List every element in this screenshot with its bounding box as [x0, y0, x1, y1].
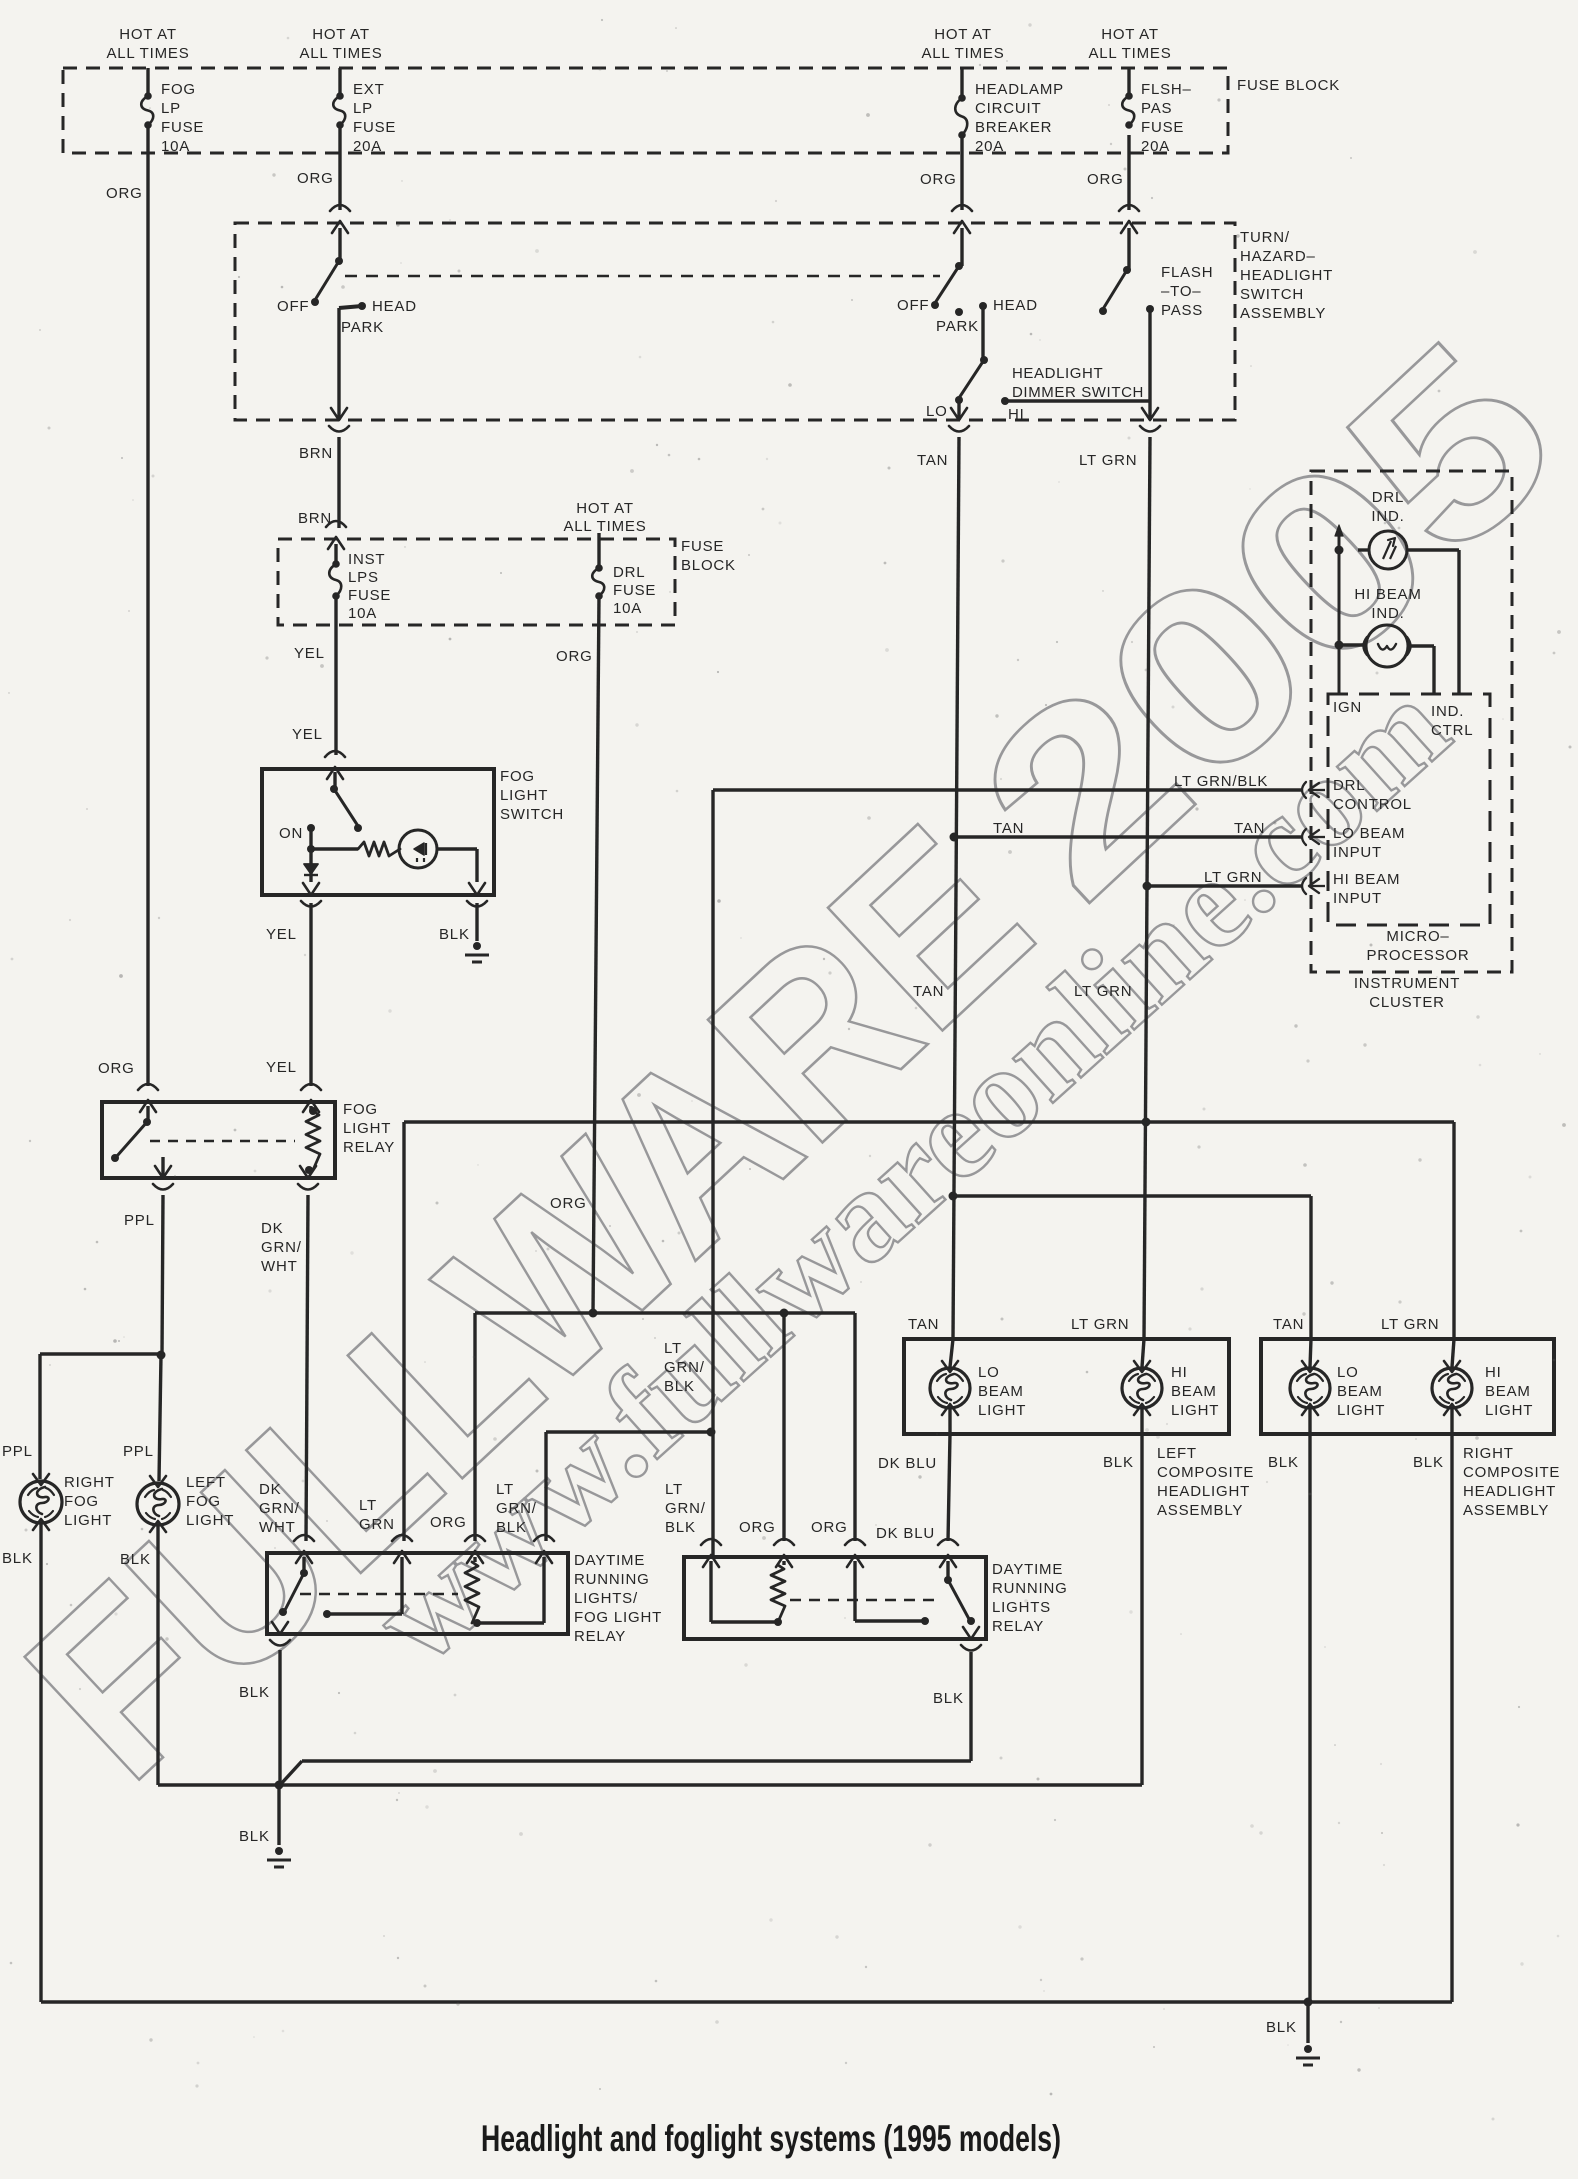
svg-text:LIGHT: LIGHT: [64, 1512, 112, 1529]
svg-text:INSTRUMENT: INSTRUMENT: [1354, 975, 1460, 992]
svg-text:RUNNING: RUNNING: [992, 1580, 1068, 1597]
svg-text:BLK: BLK: [1103, 1454, 1134, 1471]
svg-text:BLK: BLK: [1268, 1454, 1299, 1471]
svg-text:WHT: WHT: [261, 1258, 298, 1275]
svg-text:DK: DK: [261, 1220, 283, 1237]
svg-text:BEAM: BEAM: [1485, 1383, 1531, 1400]
svg-text:LT GRN: LT GRN: [1381, 1316, 1439, 1333]
svg-text:DRL: DRL: [1372, 489, 1404, 506]
svg-text:ORG: ORG: [430, 1514, 467, 1531]
svg-text:GRN/: GRN/: [259, 1500, 300, 1517]
svg-text:CONTROL: CONTROL: [1333, 796, 1412, 813]
svg-text:ORG: ORG: [920, 171, 957, 188]
svg-text:LEFT: LEFT: [186, 1474, 226, 1491]
svg-text:DK BLU: DK BLU: [876, 1525, 935, 1542]
svg-text:HI BEAM: HI BEAM: [1333, 871, 1400, 888]
svg-text:COMPOSITE: COMPOSITE: [1157, 1464, 1254, 1481]
svg-text:FUSE: FUSE: [613, 582, 656, 599]
svg-text:LT: LT: [496, 1481, 514, 1498]
svg-text:FUSE: FUSE: [353, 119, 396, 136]
svg-text:LT GRN/BLK: LT GRN/BLK: [1174, 773, 1268, 790]
svg-text:PPL: PPL: [124, 1212, 155, 1229]
svg-text:LIGHT: LIGHT: [186, 1512, 234, 1529]
svg-text:DRL: DRL: [1333, 777, 1365, 794]
svg-text:HI BEAM: HI BEAM: [1354, 586, 1421, 603]
svg-text:HOT AT: HOT AT: [119, 26, 177, 43]
svg-text:HEADLIGHT: HEADLIGHT: [1463, 1483, 1556, 1500]
svg-text:PPL: PPL: [2, 1443, 33, 1460]
svg-text:TAN: TAN: [917, 452, 948, 469]
svg-text:FLASH: FLASH: [1161, 264, 1213, 281]
svg-text:IND.: IND.: [1371, 508, 1404, 525]
svg-text:OFF: OFF: [277, 298, 309, 315]
svg-text:PARK: PARK: [936, 318, 979, 335]
svg-text:20A: 20A: [975, 138, 1004, 155]
svg-text:FUSE: FUSE: [161, 119, 204, 136]
svg-text:GRN/: GRN/: [261, 1239, 302, 1256]
svg-text:ALL TIMES: ALL TIMES: [299, 45, 382, 62]
svg-text:LIGHTS/: LIGHTS/: [574, 1590, 638, 1607]
svg-text:BEAM: BEAM: [1171, 1383, 1217, 1400]
svg-text:DAYTIME: DAYTIME: [992, 1561, 1063, 1578]
svg-text:BLK: BLK: [1266, 2019, 1297, 2036]
svg-text:LO: LO: [926, 403, 948, 420]
svg-text:IND.: IND.: [1371, 605, 1404, 622]
svg-text:LT GRN: LT GRN: [1071, 1316, 1129, 1333]
svg-text:GRN: GRN: [359, 1516, 395, 1533]
svg-text:SWITCH: SWITCH: [500, 806, 564, 823]
svg-text:BLK: BLK: [239, 1684, 270, 1701]
svg-text:EXT: EXT: [353, 81, 385, 98]
svg-text:OFF: OFF: [897, 297, 929, 314]
svg-text:TAN: TAN: [993, 820, 1024, 837]
svg-text:LEFT: LEFT: [1157, 1445, 1197, 1462]
svg-text:HEADLIGHT: HEADLIGHT: [1240, 267, 1333, 284]
svg-text:RELAY: RELAY: [992, 1618, 1044, 1635]
svg-text:SWITCH: SWITCH: [1240, 286, 1304, 303]
svg-text:BRN: BRN: [299, 445, 333, 462]
svg-text:YEL: YEL: [266, 1059, 297, 1076]
svg-text:FUSE: FUSE: [681, 538, 724, 555]
svg-text:20A: 20A: [1141, 138, 1170, 155]
svg-text:BLK: BLK: [496, 1519, 527, 1536]
svg-text:RUNNING: RUNNING: [574, 1571, 650, 1588]
svg-text:HEADLIGHT: HEADLIGHT: [1157, 1483, 1250, 1500]
svg-text:ORG: ORG: [297, 170, 334, 187]
svg-text:10A: 10A: [613, 600, 642, 617]
svg-text:ASSEMBLY: ASSEMBLY: [1157, 1502, 1243, 1519]
svg-text:LO: LO: [1337, 1364, 1359, 1381]
svg-text:ORG: ORG: [739, 1519, 776, 1536]
svg-text:RIGHT: RIGHT: [64, 1474, 115, 1491]
svg-text:LPS: LPS: [348, 569, 379, 586]
svg-text:YEL: YEL: [266, 926, 297, 943]
svg-text:FOG: FOG: [64, 1493, 99, 1510]
svg-text:BEAM: BEAM: [978, 1383, 1024, 1400]
svg-text:BLK: BLK: [665, 1519, 696, 1536]
svg-text:CTRL: CTRL: [1431, 722, 1473, 739]
svg-text:ASSEMBLY: ASSEMBLY: [1463, 1502, 1549, 1519]
svg-text:DK BLU: DK BLU: [878, 1455, 937, 1472]
svg-text:GRN/: GRN/: [496, 1500, 537, 1517]
svg-text:TAN: TAN: [1234, 820, 1265, 837]
svg-text:FOG: FOG: [161, 81, 196, 98]
svg-text:LT GRN: LT GRN: [1074, 983, 1132, 1000]
svg-text:LP: LP: [161, 100, 181, 117]
svg-text:LIGHT: LIGHT: [500, 787, 548, 804]
svg-text:10A: 10A: [348, 605, 377, 622]
svg-text:FLSH–: FLSH–: [1141, 81, 1192, 98]
svg-text:HOT AT: HOT AT: [312, 26, 370, 43]
svg-text:PROCESSOR: PROCESSOR: [1366, 947, 1469, 964]
svg-text:YEL: YEL: [292, 726, 323, 743]
svg-text:BLK: BLK: [933, 1690, 964, 1707]
svg-text:HOT AT: HOT AT: [1101, 26, 1159, 43]
svg-text:LO BEAM: LO BEAM: [1333, 825, 1405, 842]
svg-text:GRN/: GRN/: [665, 1500, 706, 1517]
svg-text:FOG: FOG: [186, 1493, 221, 1510]
svg-text:BLK: BLK: [2, 1550, 33, 1567]
svg-text:PPL: PPL: [123, 1443, 154, 1460]
svg-text:DK: DK: [259, 1481, 281, 1498]
svg-text:RIGHT: RIGHT: [1463, 1445, 1514, 1462]
svg-text:HI: HI: [1008, 406, 1025, 423]
svg-text:LT GRN: LT GRN: [1204, 869, 1262, 886]
svg-text:ORG: ORG: [98, 1060, 135, 1077]
svg-text:FUSE: FUSE: [1141, 119, 1184, 136]
svg-text:LT: LT: [664, 1340, 682, 1357]
svg-text:Headlight and foglight systems: Headlight and foglight systems (1995 mod…: [481, 2118, 1061, 2159]
svg-text:GRN/: GRN/: [664, 1359, 705, 1376]
svg-text:INPUT: INPUT: [1333, 844, 1382, 861]
svg-text:DAYTIME: DAYTIME: [574, 1552, 645, 1569]
svg-text:TAN: TAN: [908, 1316, 939, 1333]
svg-text:HI: HI: [1485, 1364, 1502, 1381]
svg-text:MICRO–: MICRO–: [1386, 928, 1449, 945]
svg-text:HOT AT: HOT AT: [576, 500, 634, 517]
svg-text:TURN/: TURN/: [1240, 229, 1290, 246]
svg-text:ASSEMBLY: ASSEMBLY: [1240, 305, 1326, 322]
svg-text:ALL TIMES: ALL TIMES: [563, 518, 646, 535]
svg-text:HAZARD–: HAZARD–: [1240, 248, 1316, 265]
svg-text:LT: LT: [359, 1497, 377, 1514]
svg-text:COMPOSITE: COMPOSITE: [1463, 1464, 1560, 1481]
svg-text:BREAKER: BREAKER: [975, 119, 1052, 136]
svg-text:10A: 10A: [161, 138, 190, 155]
svg-text:HEADLIGHT: HEADLIGHT: [1012, 365, 1103, 382]
svg-text:LT: LT: [665, 1481, 683, 1498]
svg-text:LT GRN: LT GRN: [1079, 452, 1137, 469]
svg-text:ALL TIMES: ALL TIMES: [1088, 45, 1171, 62]
svg-text:CLUSTER: CLUSTER: [1369, 994, 1445, 1011]
svg-text:ALL TIMES: ALL TIMES: [106, 45, 189, 62]
svg-text:ORG: ORG: [1087, 171, 1124, 188]
svg-text:ALL TIMES: ALL TIMES: [921, 45, 1004, 62]
svg-text:PAS: PAS: [1141, 100, 1172, 117]
svg-text:RELAY: RELAY: [343, 1139, 395, 1156]
svg-text:BLK: BLK: [1413, 1454, 1444, 1471]
svg-text:TAN: TAN: [913, 983, 944, 1000]
svg-text:FOG: FOG: [343, 1101, 378, 1118]
svg-text:INPUT: INPUT: [1333, 890, 1382, 907]
svg-text:LIGHT: LIGHT: [343, 1120, 391, 1137]
svg-text:–TO–: –TO–: [1161, 283, 1201, 300]
svg-text:HI: HI: [1171, 1364, 1188, 1381]
svg-text:HOT AT: HOT AT: [934, 26, 992, 43]
svg-text:FOG LIGHT: FOG LIGHT: [574, 1609, 662, 1626]
svg-text:LIGHTS: LIGHTS: [992, 1599, 1051, 1616]
svg-text:ORG: ORG: [550, 1195, 587, 1212]
svg-text:YEL: YEL: [294, 645, 325, 662]
svg-text:IND.: IND.: [1431, 703, 1464, 720]
svg-text:ORG: ORG: [556, 648, 593, 665]
svg-text:LP: LP: [353, 100, 373, 117]
svg-text:ON: ON: [279, 825, 303, 842]
svg-text:LIGHT: LIGHT: [1337, 1402, 1385, 1419]
svg-text:ORG: ORG: [106, 185, 143, 202]
svg-text:20A: 20A: [353, 138, 382, 155]
svg-text:BLK: BLK: [664, 1378, 695, 1395]
svg-text:BLK: BLK: [439, 926, 470, 943]
svg-text:LIGHT: LIGHT: [1171, 1402, 1219, 1419]
svg-text:RELAY: RELAY: [574, 1628, 626, 1645]
svg-text:FUSE BLOCK: FUSE BLOCK: [1237, 77, 1340, 94]
svg-text:DIMMER SWITCH: DIMMER SWITCH: [1012, 384, 1144, 401]
svg-text:BLK: BLK: [239, 1828, 270, 1845]
svg-text:BLK: BLK: [120, 1551, 151, 1568]
svg-text:CIRCUIT: CIRCUIT: [975, 100, 1041, 117]
svg-text:PASS: PASS: [1161, 302, 1203, 319]
svg-text:HEADLAMP: HEADLAMP: [975, 81, 1064, 98]
svg-text:LIGHT: LIGHT: [1485, 1402, 1533, 1419]
svg-text:HEAD: HEAD: [372, 298, 417, 315]
svg-text:TAN: TAN: [1273, 1316, 1304, 1333]
svg-text:BEAM: BEAM: [1337, 1383, 1383, 1400]
svg-text:INST: INST: [348, 551, 385, 568]
svg-text:FOG: FOG: [500, 768, 535, 785]
svg-text:LO: LO: [978, 1364, 1000, 1381]
svg-text:IGN: IGN: [1333, 699, 1362, 716]
svg-text:WHT: WHT: [259, 1519, 296, 1536]
svg-text:HEAD: HEAD: [993, 297, 1038, 314]
svg-text:PARK: PARK: [341, 319, 384, 336]
svg-text:DRL: DRL: [613, 564, 645, 581]
svg-text:BLOCK: BLOCK: [681, 557, 736, 574]
svg-text:FUSE: FUSE: [348, 587, 391, 604]
svg-text:ORG: ORG: [811, 1519, 848, 1536]
svg-text:LIGHT: LIGHT: [978, 1402, 1026, 1419]
